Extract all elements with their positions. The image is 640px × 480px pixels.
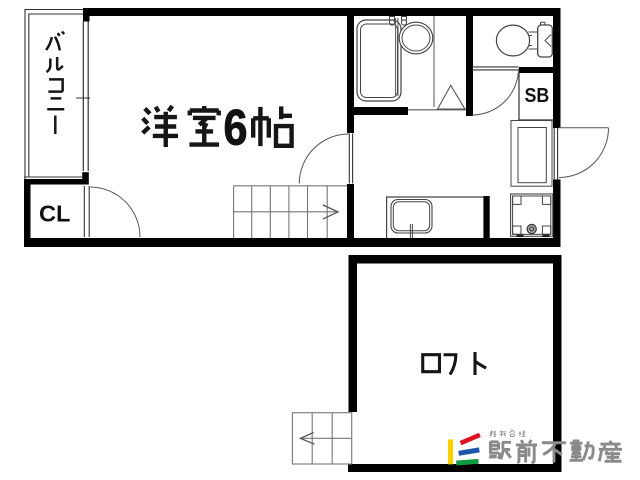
svg-text:CL: CL xyxy=(39,201,71,227)
svg-text:SB: SB xyxy=(525,84,550,107)
svg-text:6: 6 xyxy=(224,100,248,156)
